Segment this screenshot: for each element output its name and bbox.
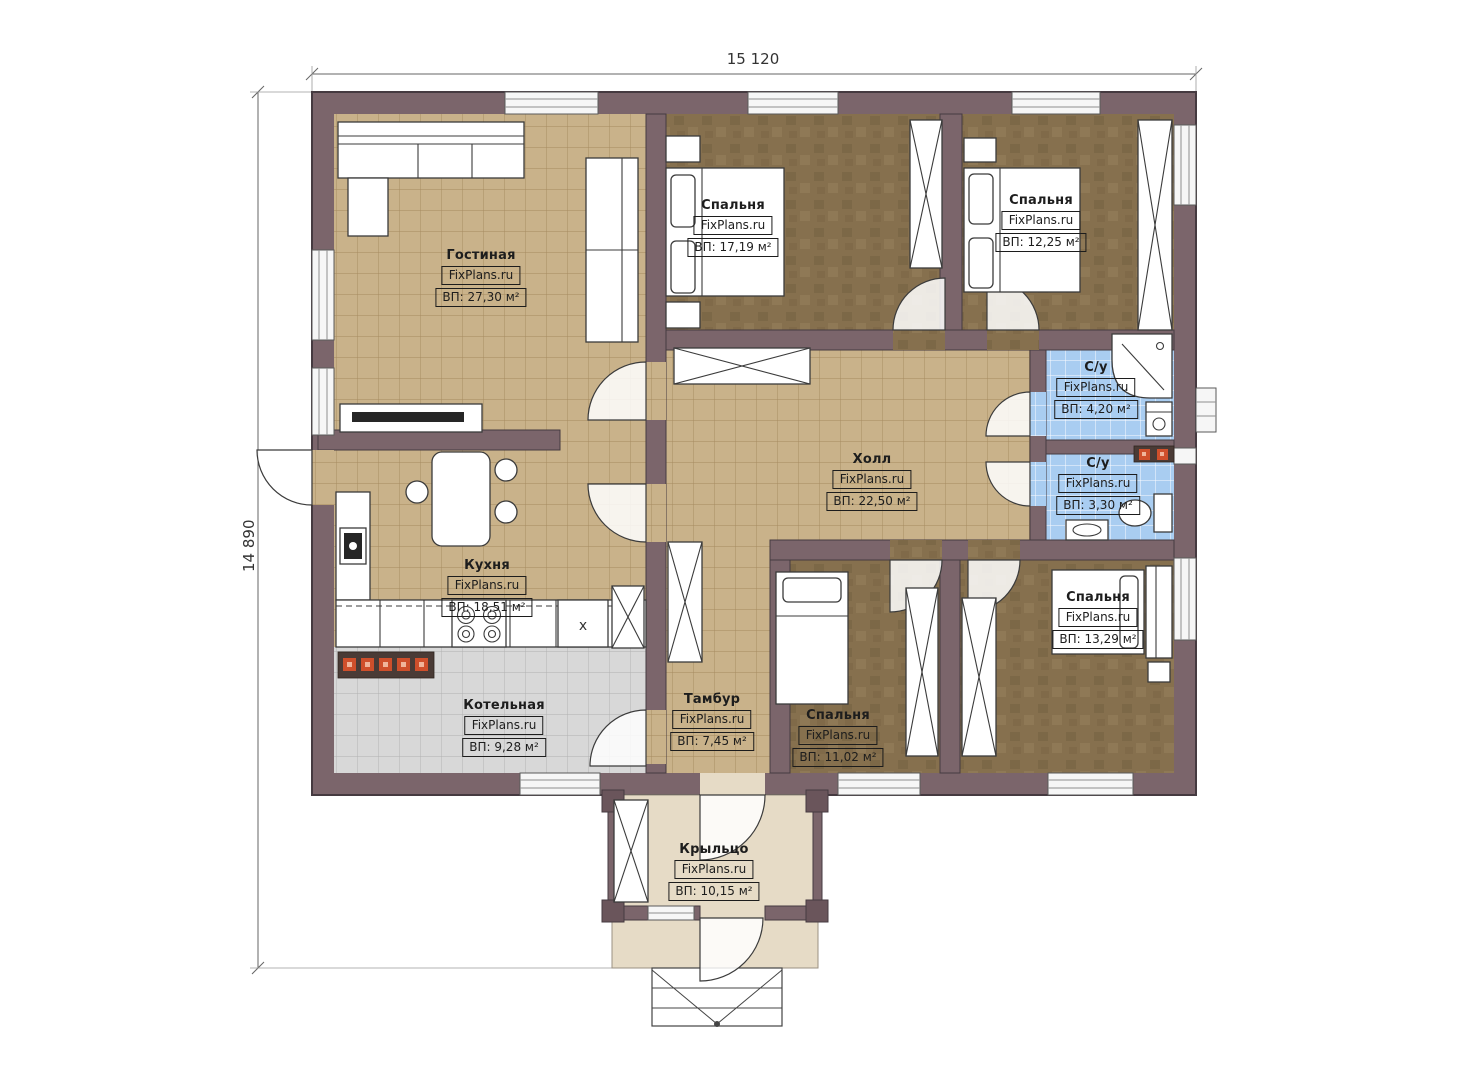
floor-plan: x [0,0,1473,1080]
room-label-living: Гостиная FixPlans.ru ВП: 27,30 м² [435,248,526,307]
watermark-box: FixPlans.ru [1057,378,1136,397]
room-name: Спальня [1052,590,1143,605]
sink-icon [1066,520,1108,540]
wardrobe-icon [906,588,938,756]
door-side-exterior [257,450,312,505]
room-label-porch: Крыльцо FixPlans.ru ВП: 10,15 м² [668,842,759,901]
dimension-left-label: 14 890 [240,520,258,573]
room-label-boiler: Котельная FixPlans.ru ВП: 9,28 м² [462,698,546,757]
watermark-box: FixPlans.ru [1059,608,1138,627]
room-name: Спальня [995,193,1086,208]
room-label-vestibule: Тамбур FixPlans.ru ВП: 7,45 м² [670,692,754,751]
watermark-box: FixPlans.ru [1002,211,1081,230]
area-box: ВП: 10,15 м² [668,882,759,901]
area-box: ВП: 11,02 м² [792,748,883,767]
room-name: Котельная [462,698,546,713]
window-icon [1048,773,1133,795]
watermark-box: FixPlans.ru [833,470,912,489]
watermark-box: FixPlans.ru [465,716,544,735]
window-icon [838,773,920,795]
room-name: Холл [826,452,917,467]
window-icon [648,906,694,920]
area-box: ВП: 3,30 м² [1056,496,1140,515]
room-name: С/у [1056,456,1140,471]
window-icon [748,92,838,114]
room-name: Спальня [687,198,778,213]
watermark-box: FixPlans.ru [1059,474,1138,493]
watermark-box: FixPlans.ru [799,726,878,745]
room-label-bath-1: С/у FixPlans.ru ВП: 4,20 м² [1054,360,1138,419]
area-box: ВП: 13,29 м² [1052,630,1143,649]
window-icon [1174,125,1196,205]
room-label-bedroom-2: Спальня FixPlans.ru ВП: 12,25 м² [995,193,1086,252]
room-label-bath-2: С/у FixPlans.ru ВП: 3,30 м² [1056,456,1140,515]
watermark-box: FixPlans.ru [673,710,752,729]
window-icon [312,368,334,435]
window-icon [505,92,598,114]
bed-icon [776,572,848,704]
area-box: ВП: 7,45 м² [670,732,754,751]
area-box: ВП: 22,50 м² [826,492,917,511]
radiator-icon [1134,446,1174,462]
window-icon [520,773,600,795]
room-name: Крыльцо [668,842,759,857]
watermark-box: FixPlans.ru [675,860,754,879]
washer-icon [1146,402,1172,436]
wardrobe-icon [962,598,996,756]
area-box: ВП: 18,51 м² [441,598,532,617]
sideboard-icon [586,158,638,342]
room-label-bedroom-4: Спальня FixPlans.ru ВП: 13,29 м² [1052,590,1143,649]
window-icon [1174,448,1196,464]
wardrobe-icon [674,348,810,384]
lattice-window-icon [614,800,648,902]
wardrobe-icon [910,120,942,268]
room-name: С/у [1054,360,1138,375]
cabinet-x-icon: x [558,600,608,647]
dimension-top-label: 15 120 [727,50,780,68]
room-label-hall: Холл FixPlans.ru ВП: 22,50 м² [826,452,917,511]
console-table-icon [340,404,482,432]
watermark-box: FixPlans.ru [442,266,521,285]
ladder-icon [612,586,644,648]
vent-box-icon [1196,388,1216,432]
wardrobe-icon [1138,120,1172,330]
watermark-box: FixPlans.ru [448,576,527,595]
room-label-bedroom-3: Спальня FixPlans.ru ВП: 11,02 м² [792,708,883,767]
cabinet-marker: x [579,618,587,634]
watermark-box: FixPlans.ru [694,216,773,235]
area-box: ВП: 9,28 м² [462,738,546,757]
area-box: ВП: 4,20 м² [1054,400,1138,419]
room-name: Кухня [441,558,532,573]
area-box: ВП: 12,25 м² [995,233,1086,252]
window-icon [1174,558,1196,640]
passage-floor [560,430,646,450]
room-label-kitchen: Кухня FixPlans.ru ВП: 18,51 м² [441,558,532,617]
window-icon [1012,92,1100,114]
room-name: Тамбур [670,692,754,707]
radiator-icon [338,652,434,678]
area-box: ВП: 17,19 м² [687,238,778,257]
area-box: ВП: 27,30 м² [435,288,526,307]
wardrobe-icon [668,542,702,662]
room-label-bedroom-1: Спальня FixPlans.ru ВП: 17,19 м² [687,198,778,257]
room-name: Гостиная [435,248,526,263]
window-icon [312,250,334,340]
floor-plan-canvas: x [0,0,1473,1080]
room-name: Спальня [792,708,883,723]
